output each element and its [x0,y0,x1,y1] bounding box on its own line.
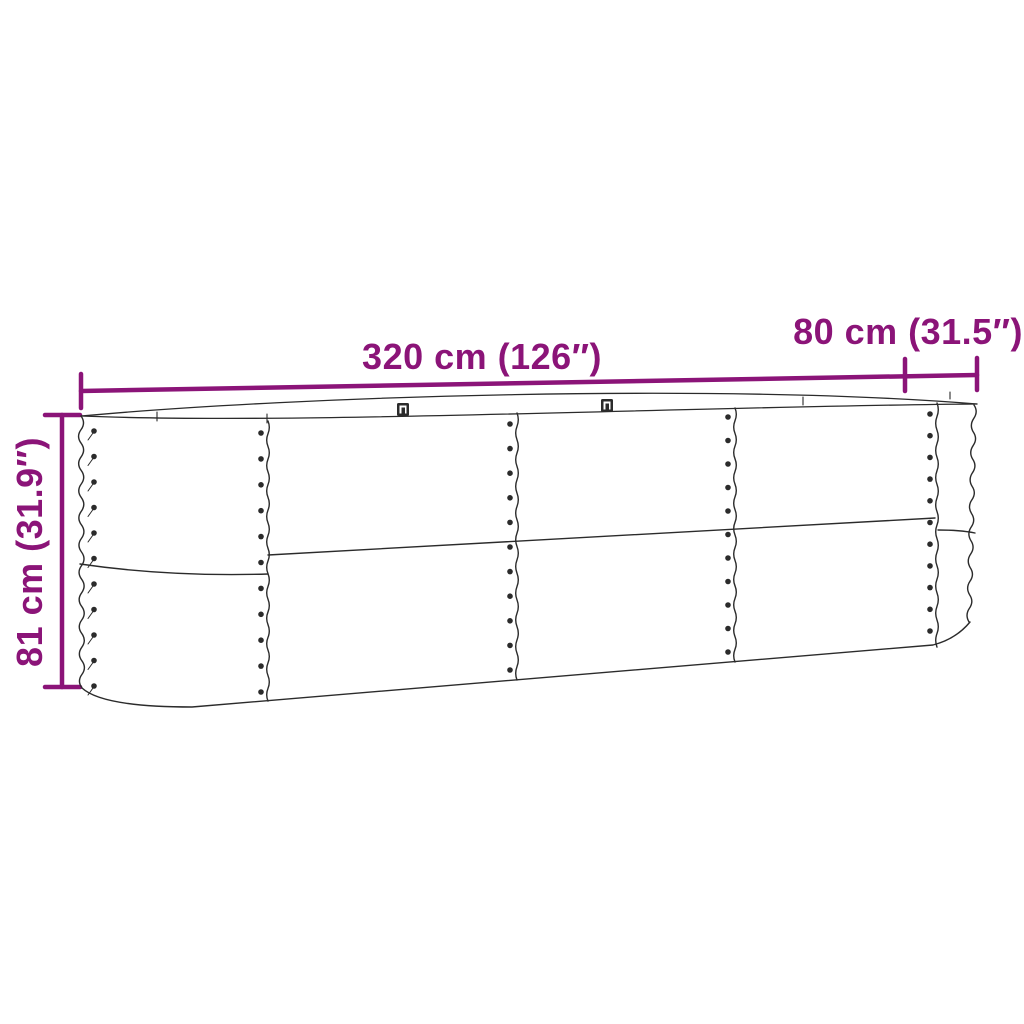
planter-line-art [0,0,1024,1024]
width-dimension-label: 80 cm (31.5″) [793,311,1023,353]
product-dimension-diagram: 320 cm (126″) 80 cm (31.5″) 81 cm (31.9″… [0,0,1024,1024]
length-dimension-label: 320 cm (126″) [362,336,602,378]
rivets [88,411,933,695]
planter-body [79,392,977,707]
rim-clips [397,399,613,416]
height-dimension-label: 81 cm (31.9″) [9,437,51,667]
